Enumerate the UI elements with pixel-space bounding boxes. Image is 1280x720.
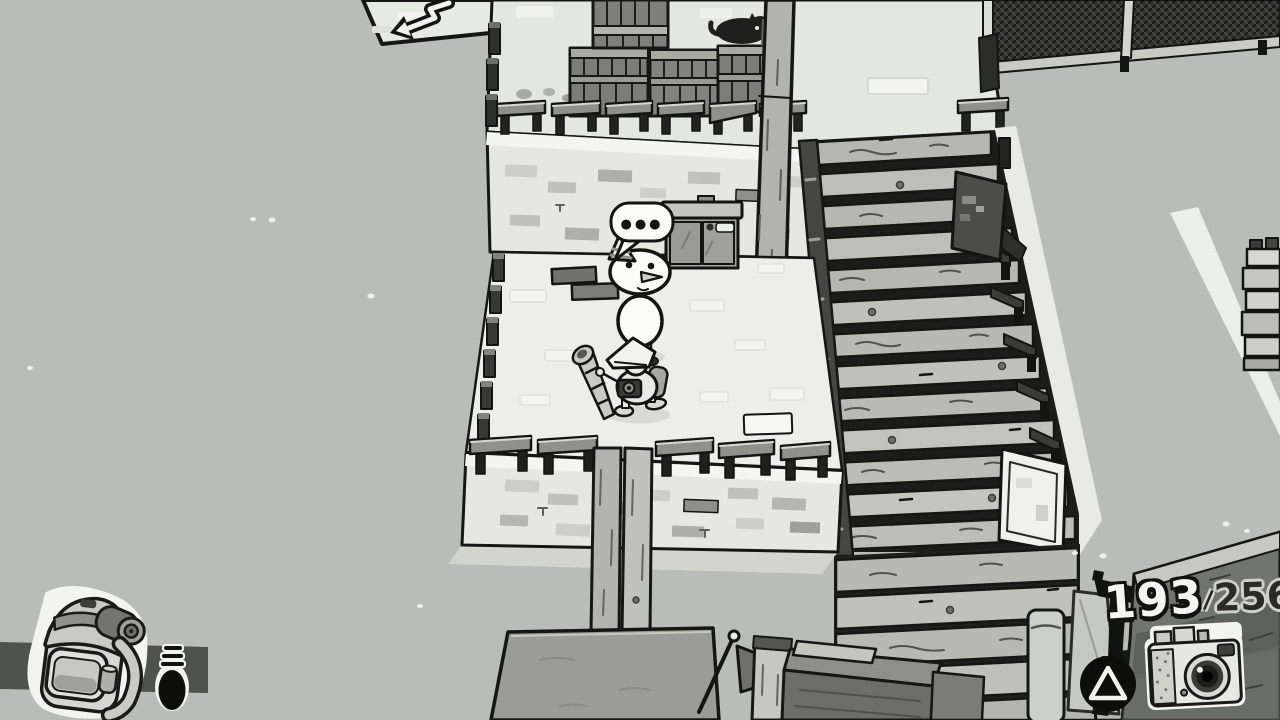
dark-plank [572, 283, 618, 300]
camera-viewfinder [1218, 644, 1235, 656]
chest-camera [618, 380, 641, 397]
game-scene: ●●● [0, 0, 1280, 720]
speech-bubble-dots: ●●● [620, 217, 663, 232]
roof-slab [491, 628, 719, 720]
fence-corner-post [979, 34, 999, 92]
metal-cabinet [662, 196, 742, 268]
support-posts [591, 448, 652, 633]
edge-fence [486, 22, 500, 126]
wooden-pole [756, 0, 794, 278]
cat-eye [755, 26, 759, 30]
snowman-eye [626, 262, 633, 269]
crate [593, 0, 668, 48]
photo-count-total: 256 [1213, 573, 1280, 620]
lower-white-wall [999, 449, 1066, 552]
snowman-eye [648, 263, 655, 270]
photo-count-separator: / [1203, 585, 1215, 614]
camera-icon[interactable] [1144, 622, 1246, 711]
camera-lens [1184, 653, 1230, 699]
game-viewport: ●●● [0, 0, 1280, 720]
photo-count-current: 193 [1102, 569, 1205, 630]
dark-plank [552, 267, 597, 284]
cabinet-knob [707, 224, 714, 231]
cabinet-label [716, 223, 734, 232]
triangle-button-icon[interactable] [1080, 656, 1136, 712]
paper-note [744, 413, 793, 435]
